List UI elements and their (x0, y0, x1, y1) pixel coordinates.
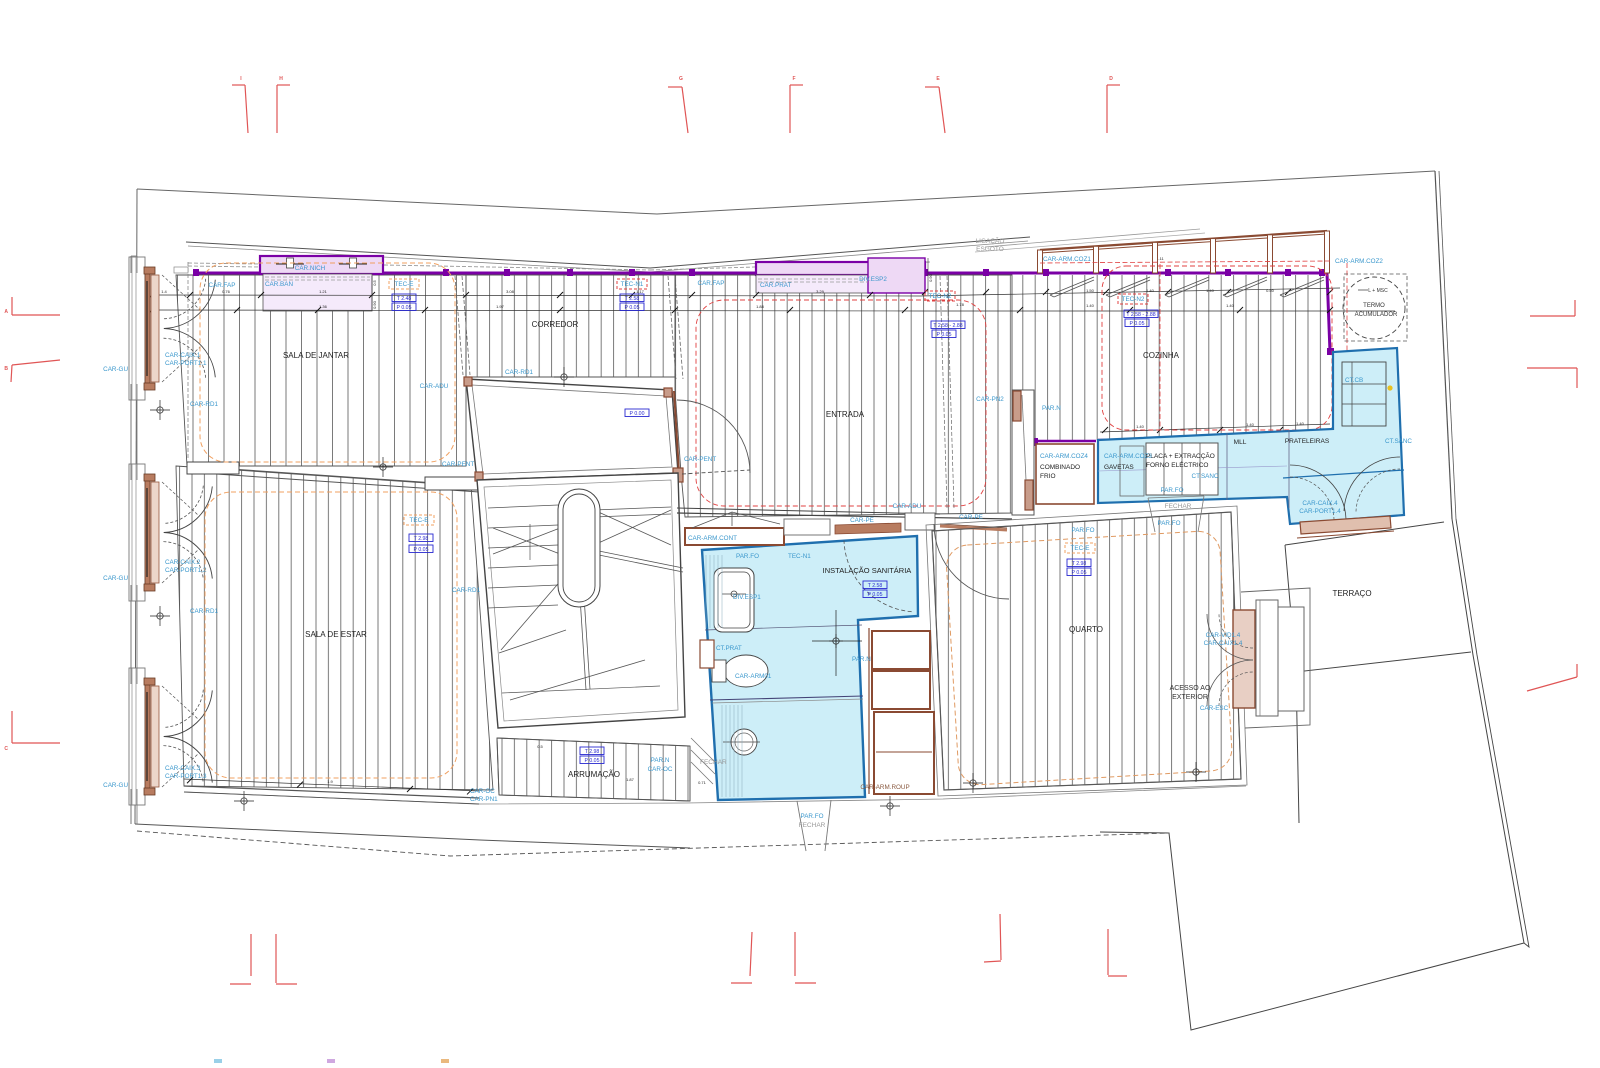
svg-text:ACUMULADOR: ACUMULADOR (1355, 312, 1398, 318)
svg-text:T 2.48: T 2.48 (397, 296, 412, 302)
svg-text:P 0.05: P 0.05 (1130, 321, 1145, 327)
svg-text:CAR-RD1: CAR-RD1 (190, 608, 218, 615)
svg-text:T 2.58: T 2.58 (625, 296, 640, 302)
svg-text:CAR-PORT1.4: CAR-PORT1.4 (1299, 508, 1341, 515)
svg-text:CT.SANC: CT.SANC (1385, 438, 1412, 445)
svg-text:P 0.05: P 0.05 (937, 332, 952, 338)
svg-text:FORNO ELÉCTRICO: FORNO ELÉCTRICO (1146, 460, 1208, 469)
svg-text:ENTRADA: ENTRADA (826, 410, 865, 419)
svg-text:P 0.05: P 0.05 (625, 305, 640, 311)
svg-text:CAR-GU: CAR-GU (103, 575, 128, 582)
svg-text:0.5: 0.5 (537, 744, 543, 749)
svg-text:ARRUMAÇÃO: ARRUMAÇÃO (568, 770, 620, 779)
svg-text:FECHAR: FECHAR (700, 759, 727, 766)
svg-text:CAR-ADU: CAR-ADU (420, 383, 449, 390)
svg-text:1.9: 1.9 (327, 779, 333, 784)
svg-text:CAR-ARM.COZ4: CAR-ARM.COZ4 (1040, 453, 1088, 460)
svg-text:CAR-PE: CAR-PE (959, 514, 983, 521)
svg-text:COMBINADO: COMBINADO (1040, 464, 1080, 471)
svg-text:SALA DE ESTAR: SALA DE ESTAR (305, 630, 367, 639)
svg-text:1.17: 1.17 (636, 289, 645, 294)
svg-text:TEC-E: TEC-E (395, 281, 414, 288)
svg-text:1.40: 1.40 (1246, 422, 1255, 427)
svg-text:CAR.NICH: CAR.NICH (295, 265, 326, 272)
svg-text:CAR-CAIX.3: CAR-CAIX.3 (165, 765, 201, 772)
svg-text:0.90: 0.90 (928, 273, 933, 282)
svg-text:G: G (679, 76, 683, 82)
svg-text:CAR-GU: CAR-GU (103, 366, 128, 373)
svg-text:QUARTO: QUARTO (1069, 625, 1103, 634)
svg-text:P 0.05: P 0.05 (585, 758, 600, 764)
svg-text:CAR-ESC: CAR-ESC (1200, 705, 1229, 712)
svg-text:1.21: 1.21 (319, 289, 328, 294)
svg-text:CT.CB: CT.CB (1345, 377, 1363, 384)
svg-text:P 0.05: P 0.05 (414, 547, 429, 553)
svg-text:1.97: 1.97 (496, 304, 505, 309)
svg-text:CAR.PRAT: CAR.PRAT (760, 282, 792, 289)
svg-text:EXTERIOR: EXTERIOR (1172, 694, 1208, 701)
svg-text:MLL: MLL (1234, 439, 1247, 446)
svg-text:1.4: 1.4 (161, 289, 167, 294)
svg-text:H: H (279, 76, 283, 82)
svg-text:CAR-PORT1.1: CAR-PORT1.1 (165, 360, 207, 367)
svg-text:CAR-RD1: CAR-RD1 (505, 369, 533, 376)
svg-text:TEC-E: TEC-E (1071, 545, 1090, 552)
svg-text:CAR-PN1: CAR-PN1 (470, 796, 498, 803)
svg-text:DIV.ESP2: DIV.ESP2 (859, 276, 887, 283)
svg-text:COZINHA: COZINHA (1143, 351, 1180, 360)
svg-text:D: D (1109, 76, 1113, 82)
svg-text:CAR-ARM.COZ3: CAR-ARM.COZ3 (1104, 453, 1152, 460)
svg-text:A: A (4, 309, 8, 315)
svg-text:1.40: 1.40 (1226, 303, 1235, 308)
svg-text:CAR-OC: CAR-OC (648, 766, 673, 773)
svg-text:PAR.FO: PAR.FO (736, 553, 759, 560)
svg-text:0.76: 0.76 (222, 289, 231, 294)
svg-text:T 2.98: T 2.98 (1072, 561, 1087, 567)
svg-text:CAR-PORT1.2: CAR-PORT1.2 (165, 567, 207, 574)
svg-text:CAR.FAP: CAR.FAP (209, 282, 236, 289)
svg-text:T 2.58 - 2.88: T 2.58 - 2.88 (1126, 312, 1155, 318)
svg-text:P 0.05: P 0.05 (868, 592, 883, 598)
svg-text:CAR-CAIX1.4: CAR-CAIX1.4 (1204, 640, 1243, 647)
svg-text:1.36: 1.36 (319, 304, 328, 309)
svg-text:CAR-ARM.COZ1: CAR-ARM.COZ1 (1043, 256, 1091, 263)
svg-text:C: C (4, 746, 8, 752)
svg-text:TEC-N1: TEC-N1 (621, 281, 644, 288)
svg-text:CAR-OC: CAR-OC (470, 788, 495, 795)
svg-text:CAR-ARM.CONT: CAR-ARM.CONT (688, 535, 737, 542)
svg-text:SALA DE JANTAR: SALA DE JANTAR (283, 351, 349, 360)
svg-text:CT.PRAT: CT.PRAT (716, 645, 742, 652)
svg-text:LIGAÇÃO: LIGAÇÃO (976, 236, 1005, 245)
svg-text:PAR.FO: PAR.FO (801, 813, 824, 820)
svg-text:FECHAR: FECHAR (1165, 503, 1192, 510)
svg-text:CAR-PORT1.3: CAR-PORT1.3 (165, 773, 207, 780)
svg-text:T 2.98: T 2.98 (585, 749, 600, 755)
svg-text:F: F (792, 76, 795, 82)
svg-text:CAR-ADU: CAR-ADU (893, 503, 922, 510)
svg-text:CAR-CAIX.2: CAR-CAIX.2 (165, 559, 201, 566)
svg-text:TEC-E: TEC-E (410, 517, 429, 524)
svg-text:0.90: 0.90 (372, 300, 377, 309)
svg-text:CAR-RD1: CAR-RD1 (452, 587, 480, 594)
svg-text:CAR-RD1: CAR-RD1 (190, 401, 218, 408)
svg-text:PAR.N: PAR.N (852, 656, 871, 663)
svg-text:T 2.98: T 2.98 (414, 536, 429, 542)
svg-text:INSTALAÇÃO SANITÁRIA: INSTALAÇÃO SANITÁRIA (823, 566, 912, 575)
svg-text:3.29: 3.29 (816, 289, 825, 294)
svg-text:CAR-GU: CAR-GU (103, 782, 128, 789)
svg-text:CT.SANC: CT.SANC (1192, 473, 1219, 480)
svg-text:PAR.FO: PAR.FO (1072, 527, 1095, 534)
svg-text:3.08: 3.08 (506, 289, 515, 294)
svg-text:P 0.05: P 0.05 (397, 305, 412, 311)
svg-text:PLACA + EXTRACÇÃO: PLACA + EXTRACÇÃO (1146, 451, 1215, 460)
svg-text:1.88: 1.88 (756, 304, 765, 309)
svg-text:CAR-CAIX.4: CAR-CAIX.4 (1302, 500, 1338, 507)
svg-text:1.40: 1.40 (1296, 421, 1305, 426)
svg-text:1.50: 1.50 (1086, 288, 1095, 293)
svg-text:PAR.N: PAR.N (1042, 405, 1061, 412)
svg-text:PAR.FO: PAR.FO (1161, 487, 1184, 494)
svg-text:CAR.FAP: CAR.FAP (698, 280, 725, 287)
svg-text:P 0.05: P 0.05 (1072, 570, 1087, 576)
svg-text:TEC-N2: TEC-N2 (929, 293, 952, 300)
svg-text:PRATELEIRAS: PRATELEIRAS (1285, 438, 1330, 445)
svg-text:1.78: 1.78 (956, 302, 965, 307)
svg-text:0.50: 0.50 (1266, 288, 1275, 293)
svg-text:1.40: 1.40 (1136, 424, 1145, 429)
svg-text:CAR-ARM.COZ2: CAR-ARM.COZ2 (1335, 258, 1383, 265)
svg-text:CAR-PE: CAR-PE (850, 517, 874, 524)
svg-text:TERRAÇO: TERRAÇO (1332, 589, 1371, 598)
svg-text:ESGOTO: ESGOTO (976, 246, 1004, 253)
svg-text:L + MSC: L + MSC (1368, 288, 1388, 294)
svg-text:CAR-PENT: CAR-PENT (684, 456, 716, 463)
svg-text:FRIO: FRIO (1040, 473, 1056, 480)
svg-text:CAR-ARM01: CAR-ARM01 (735, 673, 772, 680)
svg-text:B: B (4, 366, 8, 372)
svg-text:PAR.FO: PAR.FO (1158, 520, 1181, 527)
svg-text:CORREDOR: CORREDOR (532, 320, 579, 329)
svg-text:0.71: 0.71 (698, 780, 707, 785)
svg-text:CAR-PN2: CAR-PN2 (976, 396, 1004, 403)
svg-text:CAR.BAN: CAR.BAN (265, 281, 293, 288)
svg-text:P 0.00: P 0.00 (630, 411, 645, 417)
svg-text:CAR-CAIX.1: CAR-CAIX.1 (165, 352, 201, 359)
svg-text:DIV.ESP1: DIV.ESP1 (733, 594, 761, 601)
svg-text:TEC-N1: TEC-N1 (788, 553, 811, 560)
svg-text:T 2.58: T 2.58 (868, 583, 883, 589)
svg-text:TEC-N2: TEC-N2 (1122, 296, 1145, 303)
svg-text:ACESSO AO: ACESSO AO (1170, 685, 1211, 692)
svg-text:CAR-ARM.ROUP: CAR-ARM.ROUP (860, 784, 909, 791)
svg-text:CAR-VID1.4: CAR-VID1.4 (1206, 632, 1241, 639)
svg-text:TERMO: TERMO (1363, 303, 1385, 309)
svg-text:GAVETAS: GAVETAS (1104, 464, 1134, 471)
svg-text:1.40: 1.40 (1206, 288, 1215, 293)
svg-text:1.40: 1.40 (1086, 303, 1095, 308)
svg-text:T 2.58 - 2.88: T 2.58 - 2.88 (933, 323, 962, 329)
svg-text:CAR-PENT: CAR-PENT (442, 461, 474, 468)
svg-text:1.40: 1.40 (1146, 288, 1155, 293)
svg-text:0.5: 0.5 (372, 279, 377, 285)
svg-text:PAR.N: PAR.N (651, 757, 670, 764)
svg-text:FECHAR: FECHAR (799, 822, 826, 829)
svg-text:1.87: 1.87 (626, 777, 635, 782)
